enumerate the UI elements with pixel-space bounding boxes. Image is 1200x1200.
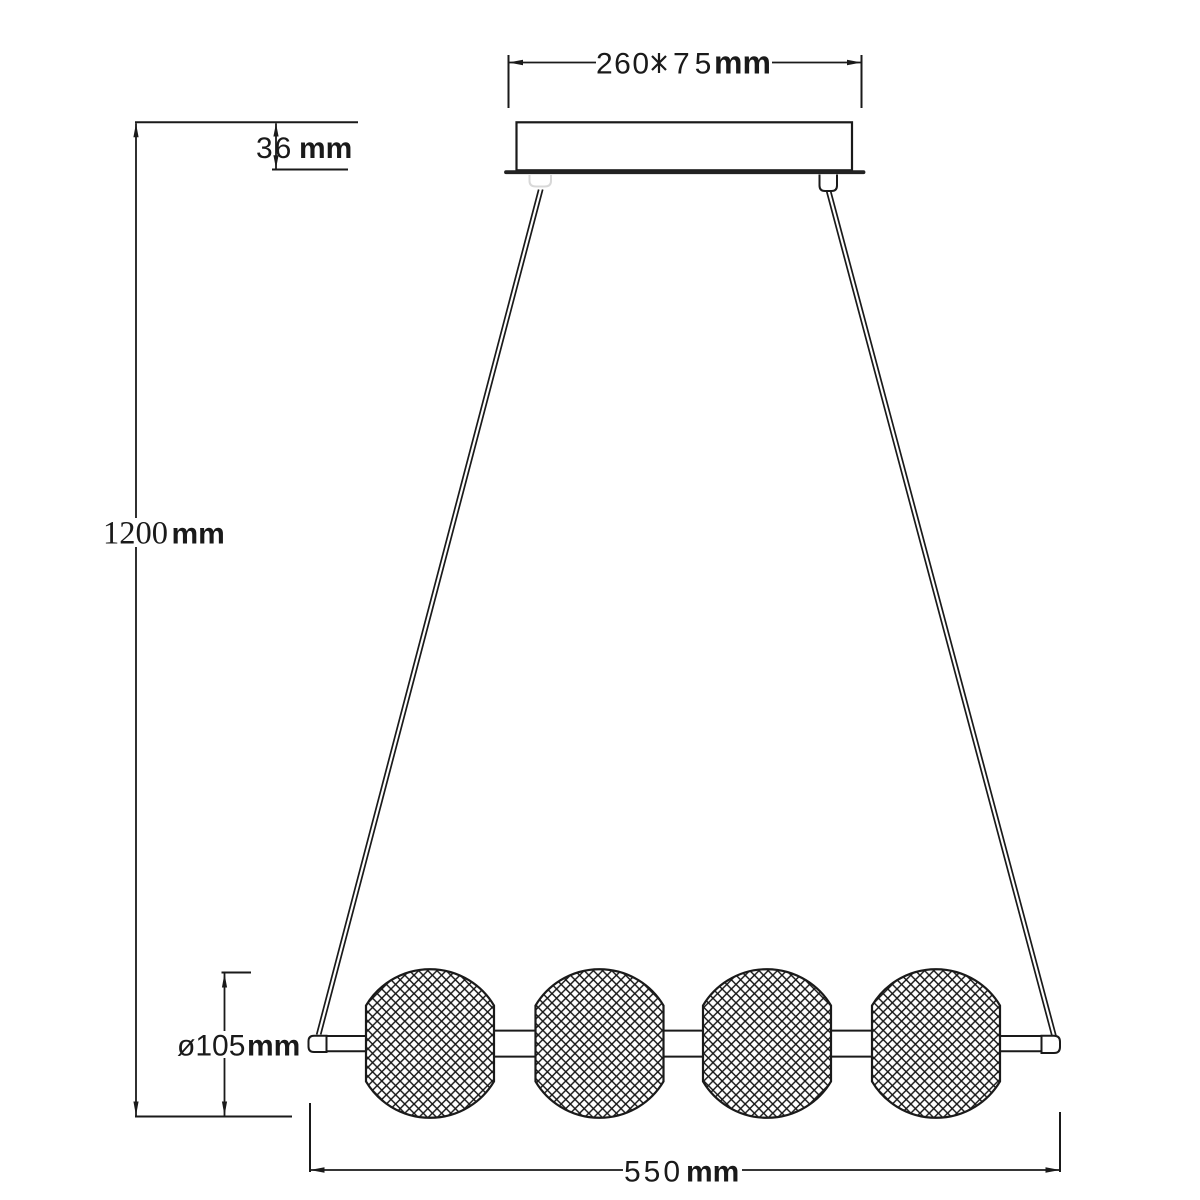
svg-text:75: 75 [673,48,716,81]
svg-text:mm: mm [686,1156,739,1189]
svg-text:mm: mm [714,45,771,81]
svg-text:mm: mm [299,132,352,165]
svg-text:mm: mm [247,1030,300,1063]
svg-text:550: 550 [624,1156,683,1189]
svg-text:260: 260 [596,48,651,81]
svg-text:ø105: ø105 [177,1030,245,1063]
svg-text:mm: mm [172,518,225,551]
svg-text:1200: 1200 [103,516,168,552]
